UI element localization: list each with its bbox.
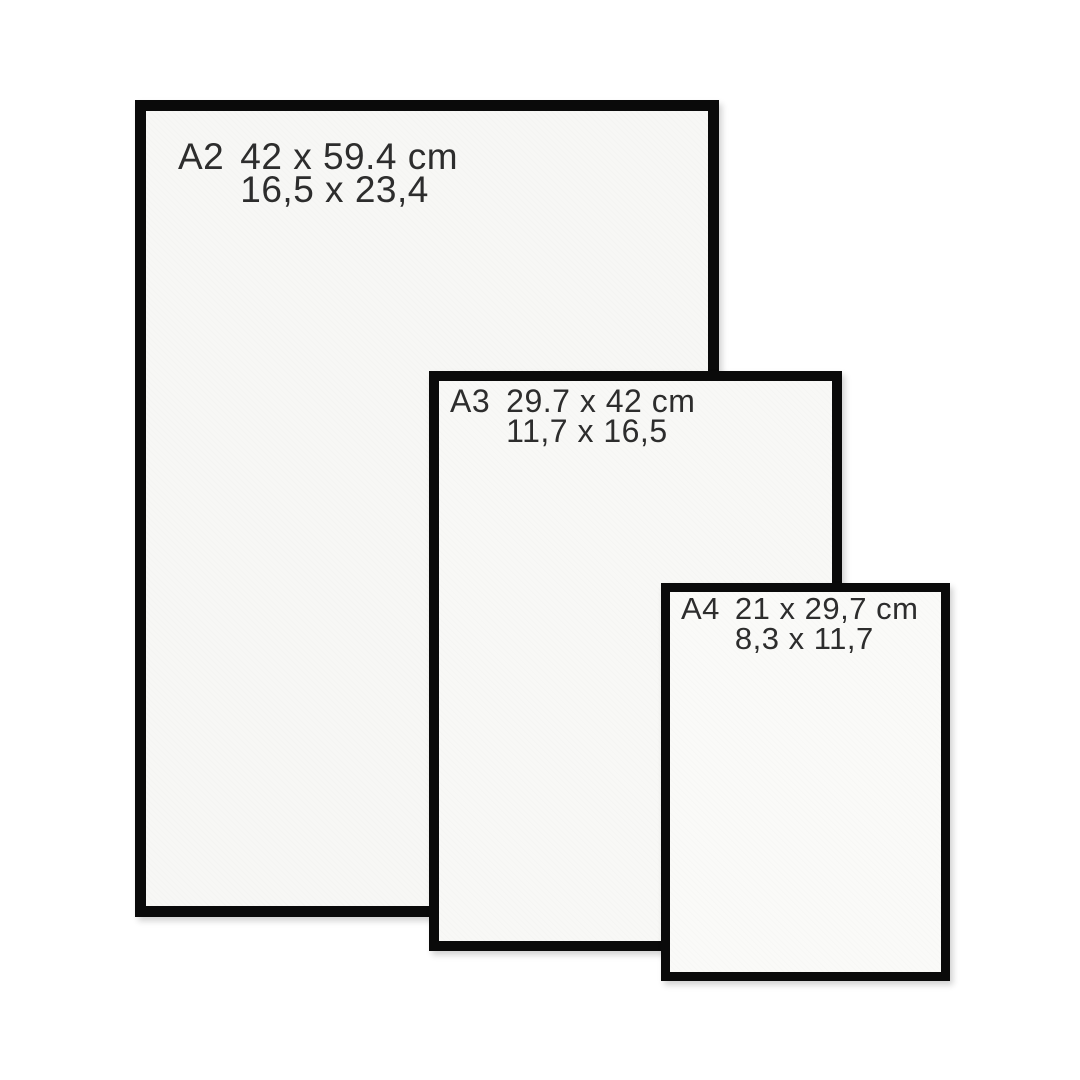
frame-a3-dimensions-inches: 11,7 x 16,5 <box>506 416 695 446</box>
frame-a4-label: A4 21 x 29,7 cm 8,3 x 11,7 <box>681 594 941 654</box>
frame-a3-size-code: A3 <box>450 386 490 416</box>
frame-a4-dimensions: 21 x 29,7 cm 8,3 x 11,7 <box>735 594 918 654</box>
frame-a2-size-code: A2 <box>178 140 224 173</box>
frame-a4: A4 21 x 29,7 cm 8,3 x 11,7 <box>661 583 950 981</box>
frame-a2-dimensions: 42 x 59.4 cm 16,5 x 23,4 <box>240 140 458 206</box>
frame-a3-label: A3 29.7 x 42 cm 11,7 x 16,5 <box>450 386 832 446</box>
frame-a3-dimensions-cm: 29.7 x 42 cm <box>506 386 695 416</box>
frame-a4-dimensions-inches: 8,3 x 11,7 <box>735 624 918 654</box>
frame-a4-size-code: A4 <box>681 594 720 624</box>
frame-a3-dimensions: 29.7 x 42 cm 11,7 x 16,5 <box>506 386 695 446</box>
poster-size-comparison: A2 42 x 59.4 cm 16,5 x 23,4 A3 29.7 x 42… <box>0 0 1080 1080</box>
frame-a4-dimensions-cm: 21 x 29,7 cm <box>735 594 918 624</box>
frame-a2-label: A2 42 x 59.4 cm 16,5 x 23,4 <box>178 140 708 206</box>
frame-a2-dimensions-inches: 16,5 x 23,4 <box>240 173 458 206</box>
